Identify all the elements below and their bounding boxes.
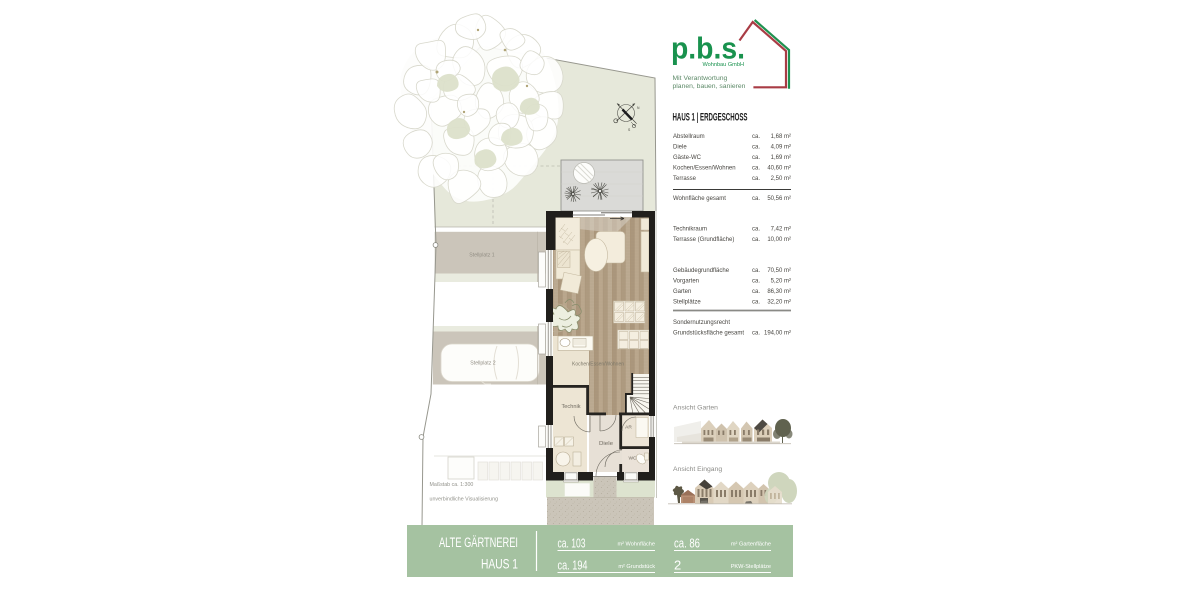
svg-text:AR: AR — [625, 425, 632, 431]
svg-text:86,30 m²: 86,30 m² — [767, 289, 791, 295]
svg-text:ca.: ca. — [752, 268, 760, 274]
svg-text:PKW-Stellplätze: PKW-Stellplätze — [731, 564, 771, 570]
svg-text:Technik: Technik — [562, 404, 582, 410]
svg-text:ca.: ca. — [752, 176, 760, 182]
svg-text:Gäste-WC: Gäste-WC — [673, 155, 702, 161]
svg-text:Diele: Diele — [599, 441, 613, 447]
svg-text:40,60 m²: 40,60 m² — [767, 166, 791, 172]
svg-text:50,56 m²: 50,56 m² — [767, 196, 791, 202]
svg-text:Terrasse: Terrasse — [673, 176, 697, 182]
svg-text:Wohnbau GmbH: Wohnbau GmbH — [702, 62, 744, 68]
svg-text:Maßstab ca. 1:300: Maßstab ca. 1:300 — [430, 482, 474, 488]
svg-text:p.b.s.: p.b.s. — [671, 31, 745, 66]
svg-text:HAUS 1: HAUS 1 — [481, 557, 518, 572]
svg-text:HAUS 1 | ERDGESCHOSS: HAUS 1 | ERDGESCHOSS — [673, 112, 748, 124]
svg-text:Grundstücksfläche gesamt: Grundstücksfläche gesamt — [673, 331, 744, 337]
svg-text:ca.: ca. — [752, 196, 760, 202]
svg-text:2,50 m²: 2,50 m² — [771, 176, 791, 182]
svg-text:ca.: ca. — [752, 227, 760, 233]
svg-text:unverbindliche Visualisierung: unverbindliche Visualisierung — [430, 497, 499, 503]
svg-text:Stellplatz 1: Stellplatz 1 — [469, 253, 494, 259]
svg-text:ca.: ca. — [752, 166, 760, 172]
svg-text:ca. 86: ca. 86 — [674, 536, 700, 551]
svg-text:Garten: Garten — [673, 289, 691, 295]
svg-text:5,20 m²: 5,20 m² — [771, 279, 791, 285]
svg-text:Kochen/Essen/Wohnen: Kochen/Essen/Wohnen — [572, 362, 624, 368]
svg-text:ca. 194: ca. 194 — [558, 558, 588, 573]
svg-text:Sondernutzungsrecht: Sondernutzungsrecht — [673, 320, 730, 326]
svg-text:WC: WC — [629, 456, 638, 462]
svg-text:Terrasse (Grundfläche): Terrasse (Grundfläche) — [673, 237, 734, 243]
svg-text:32,20 m²: 32,20 m² — [767, 300, 791, 306]
svg-text:Vorgarten: Vorgarten — [673, 279, 699, 285]
svg-text:1,69 m²: 1,69 m² — [771, 155, 791, 161]
svg-text:Stellplätze: Stellplätze — [673, 300, 701, 306]
svg-text:ALTE GÄRTNEREI: ALTE GÄRTNEREI — [439, 535, 518, 550]
svg-text:70,50 m²: 70,50 m² — [767, 268, 791, 274]
svg-text:4,09 m²: 4,09 m² — [771, 145, 791, 151]
svg-text:194,00 m²: 194,00 m² — [764, 331, 791, 337]
svg-text:ca.: ca. — [752, 237, 760, 243]
svg-text:ca.: ca. — [752, 331, 760, 337]
svg-text:planen, bauen, sanieren: planen, bauen, sanieren — [673, 83, 746, 90]
svg-text:m² Wohnfläche: m² Wohnfläche — [617, 542, 655, 548]
svg-text:Diele: Diele — [673, 145, 687, 151]
svg-text:Ansicht Eingang: Ansicht Eingang — [673, 466, 722, 473]
svg-text:Stellplatz 2: Stellplatz 2 — [470, 361, 495, 367]
svg-text:m² Grundstück: m² Grundstück — [618, 564, 655, 570]
svg-text:Abstellraum: Abstellraum — [673, 134, 705, 140]
svg-text:ca.: ca. — [752, 279, 760, 285]
svg-text:Wohnfläche gesamt: Wohnfläche gesamt — [673, 196, 726, 202]
svg-text:m² Gartenfläche: m² Gartenfläche — [731, 542, 771, 548]
svg-text:ca.: ca. — [752, 300, 760, 306]
svg-text:Mit Verantwortung: Mit Verantwortung — [673, 75, 728, 82]
svg-text:2: 2 — [674, 558, 681, 573]
svg-text:Gebäudegrundfläche: Gebäudegrundfläche — [673, 268, 730, 274]
svg-text:Technikraum: Technikraum — [673, 227, 707, 233]
svg-text:ca.: ca. — [752, 289, 760, 295]
svg-text:1,68 m²: 1,68 m² — [771, 134, 791, 140]
svg-text:Kochen/Essen/Wohnen: Kochen/Essen/Wohnen — [673, 166, 736, 172]
svg-text:ca. 103: ca. 103 — [558, 536, 586, 551]
svg-text:ca.: ca. — [752, 134, 760, 140]
svg-text:ca.: ca. — [752, 155, 760, 161]
svg-text:10,00 m²: 10,00 m² — [767, 237, 791, 243]
svg-text:ca.: ca. — [752, 145, 760, 151]
svg-text:Ansicht Garten: Ansicht Garten — [673, 405, 718, 412]
svg-text:7,42 m²: 7,42 m² — [771, 227, 791, 233]
